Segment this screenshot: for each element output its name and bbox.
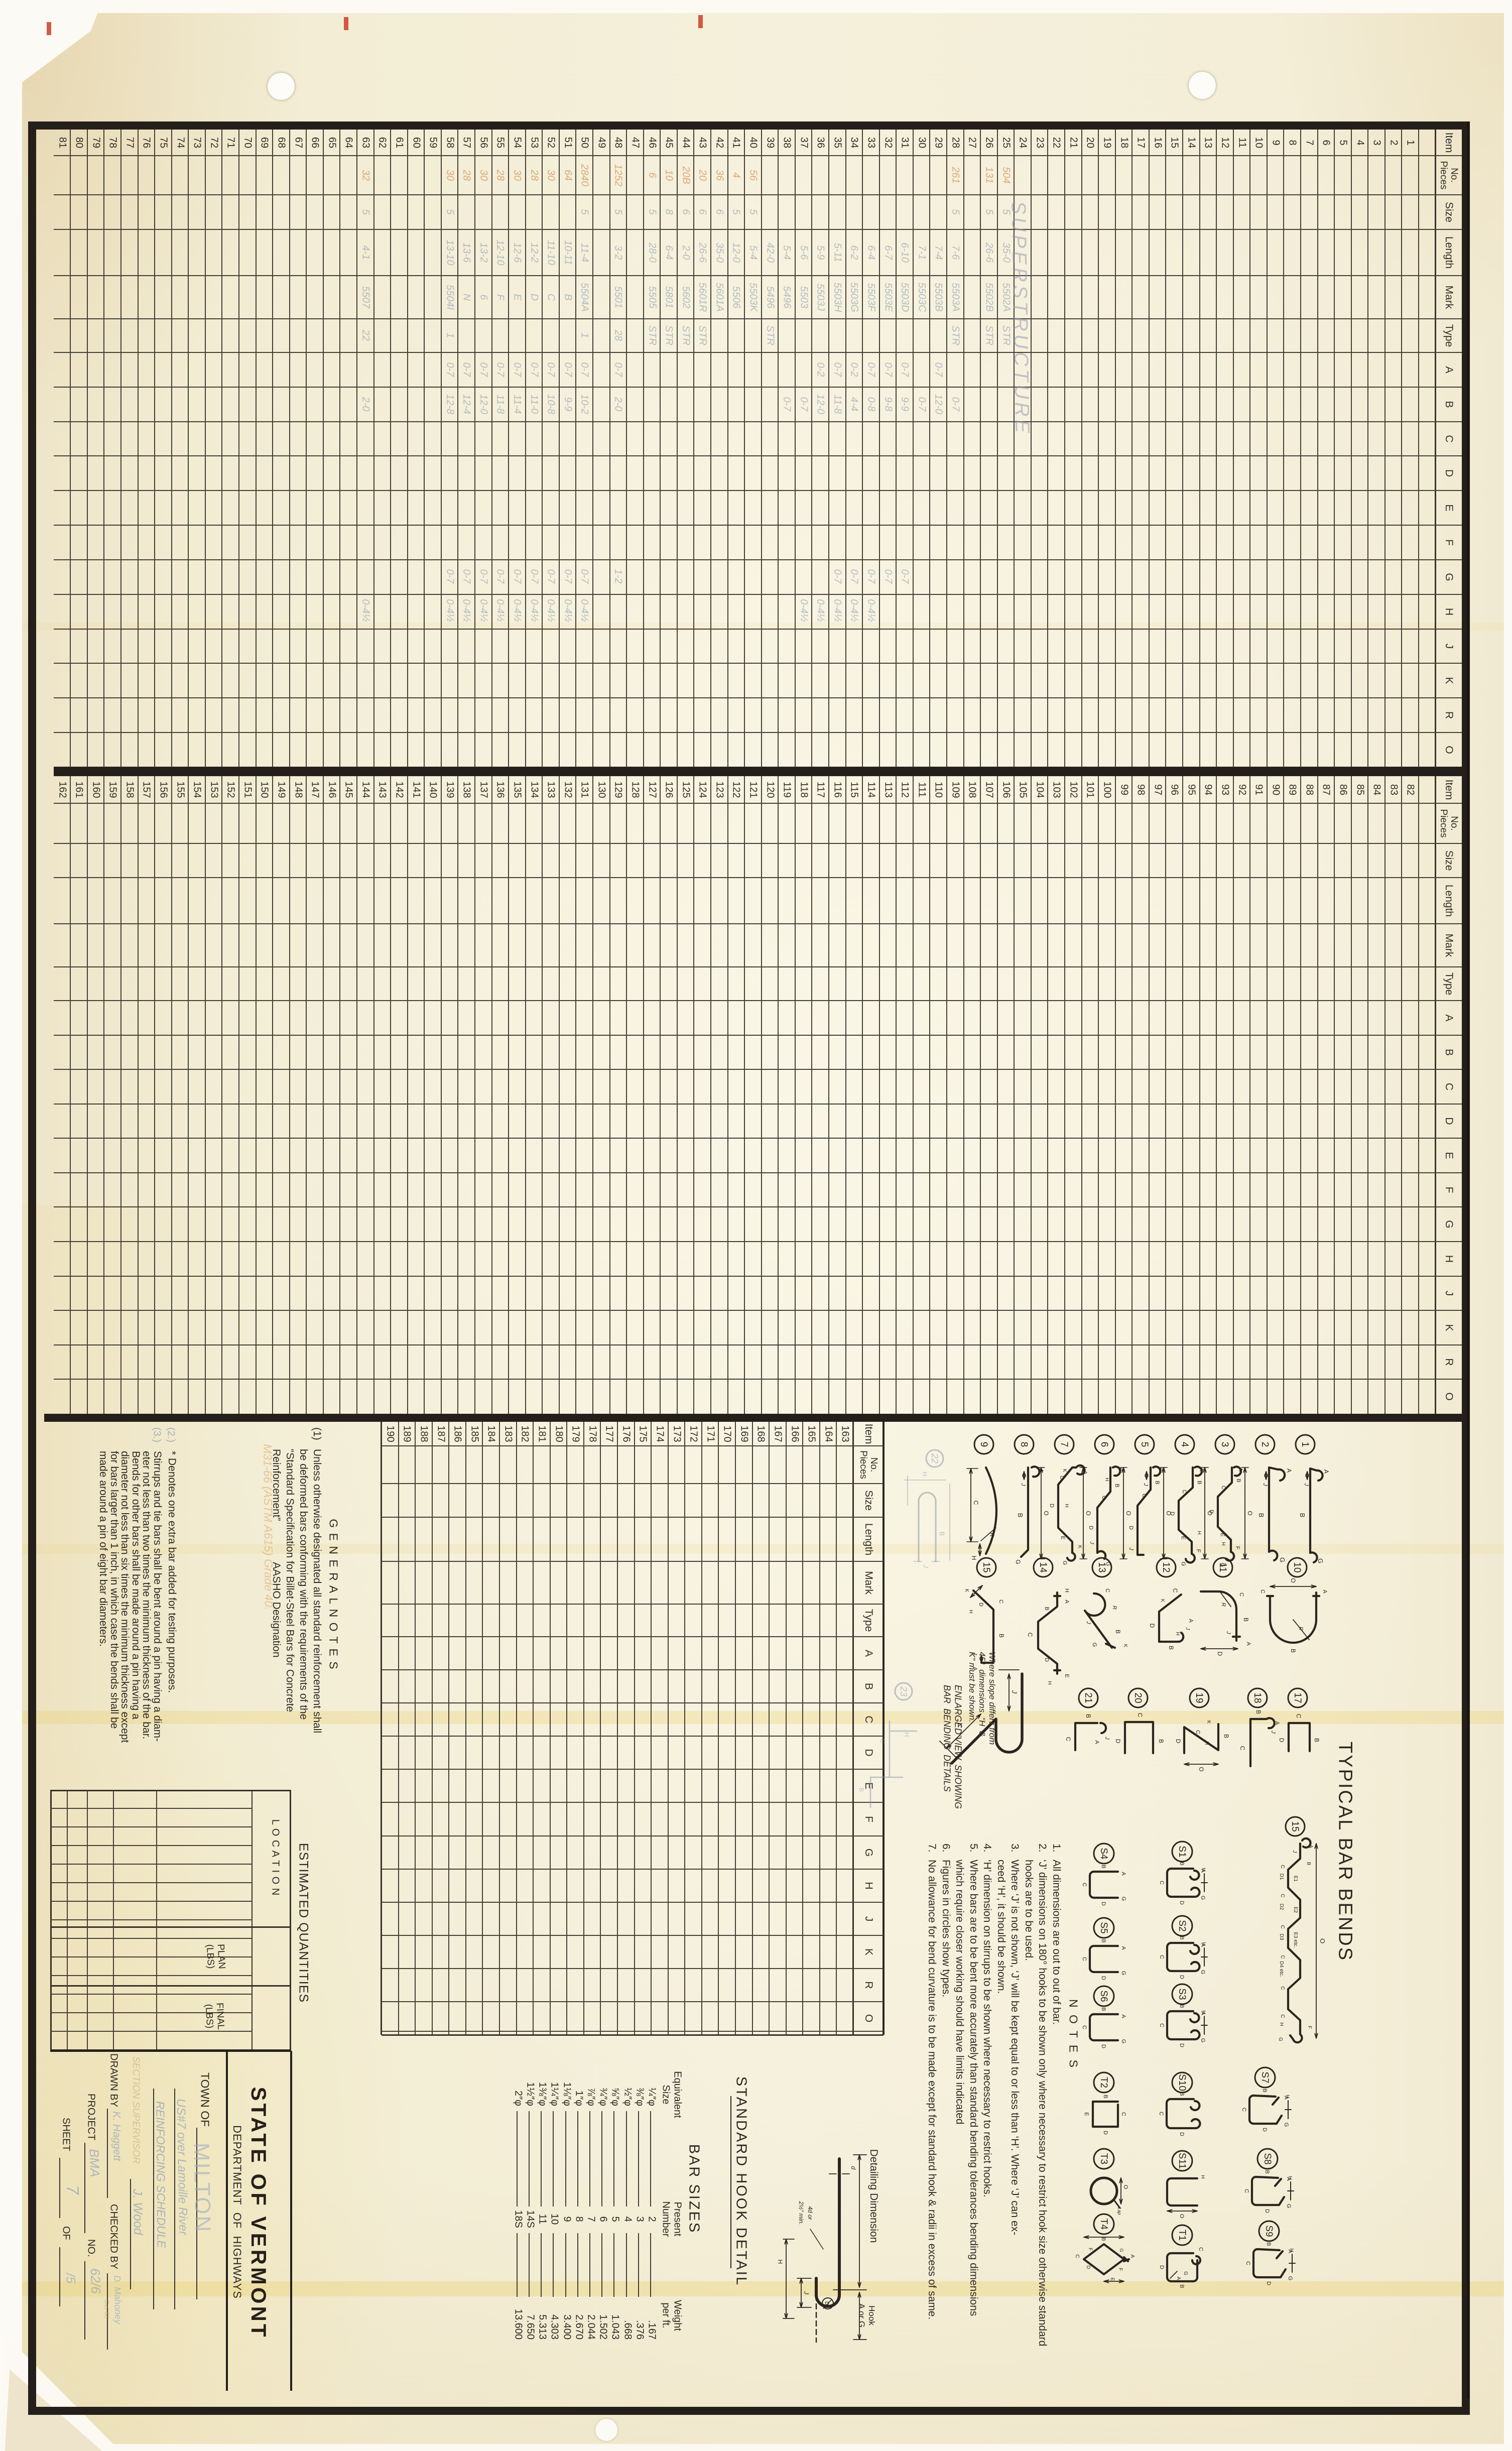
svg-text:A: A — [1274, 1721, 1280, 1725]
svg-text:C: C — [1081, 2025, 1087, 2029]
svg-text:D: D — [1044, 1658, 1050, 1662]
svg-text:J: J — [1011, 1690, 1018, 1694]
svg-text:D: D — [1262, 2128, 1268, 2132]
svg-text:S11: S11 — [1177, 2153, 1187, 2169]
svg-text:H: H — [1287, 2176, 1293, 2179]
svg-text:B: B — [1179, 2092, 1185, 2096]
svg-text:13: 13 — [1096, 1562, 1107, 1572]
svg-text:B: B — [1290, 1649, 1297, 1653]
svg-text:D: D — [1216, 1652, 1223, 1656]
svg-text:5: 5 — [1139, 1442, 1150, 1447]
svg-text:E1: E1 — [1293, 1876, 1298, 1882]
svg-text:14: 14 — [1038, 1562, 1048, 1573]
svg-text:S7: S7 — [1259, 2071, 1270, 2083]
svg-text:J: J — [1128, 1547, 1134, 1550]
svg-text:S5: S5 — [1098, 1922, 1109, 1933]
svg-text:O: O — [1206, 1511, 1213, 1515]
svg-text:D: D — [1149, 1624, 1156, 1628]
svg-text:O: O — [1125, 1511, 1132, 1515]
svg-text:B: B — [1158, 1739, 1165, 1743]
svg-text:B: B — [1235, 1479, 1241, 1482]
svg-text:J: J — [803, 2291, 810, 2295]
svg-text:J: J — [1085, 1621, 1091, 1624]
svg-text:G: G — [1200, 2038, 1206, 2043]
svg-text:D: D — [1100, 2044, 1106, 2048]
svg-text:B: B — [1262, 2089, 1268, 2092]
svg-text:O: O — [1290, 1578, 1297, 1582]
svg-text:H: H — [1201, 2010, 1206, 2014]
svg-text:K: K — [1062, 1469, 1067, 1473]
svg-text:F: F — [1307, 2026, 1312, 2029]
svg-text:R: R — [1220, 1603, 1226, 1607]
svg-text:F: F — [1087, 2248, 1093, 2251]
svg-text:Lap: Lap — [1117, 2207, 1122, 2215]
svg-text:C: C — [1245, 2261, 1251, 2265]
svg-text:F: F — [1195, 1549, 1201, 1553]
svg-text:C: C — [1195, 1730, 1201, 1734]
svg-text:C: C — [1137, 1713, 1144, 1718]
svg-text:D: D — [1175, 1739, 1182, 1744]
svg-text:B: B — [1306, 1862, 1311, 1866]
svg-text:A: A — [1158, 1467, 1164, 1472]
svg-text:B: B — [1266, 2242, 1272, 2246]
svg-text:B: B — [1114, 1630, 1121, 1634]
svg-text:B: B — [1179, 1862, 1185, 1865]
svg-text:B: B — [1313, 1738, 1320, 1742]
svg-text:D: D — [1264, 2209, 1270, 2213]
svg-text:H: H — [921, 1472, 928, 1477]
svg-text:J: J — [1262, 1483, 1268, 1486]
svg-text:H: H — [1204, 1741, 1209, 1745]
svg-text:B: B — [1264, 2170, 1270, 2173]
svg-text:J: J — [922, 1564, 929, 1568]
svg-text:H: H — [1200, 2175, 1205, 2178]
svg-text:C: C — [1159, 2023, 1165, 2027]
svg-text:J: J — [1143, 1483, 1149, 1486]
svg-text:H: H — [1047, 1681, 1052, 1684]
svg-text:O: O — [1122, 2185, 1128, 2189]
svg-text:J: J — [1020, 1483, 1026, 1486]
svg-text:10: 10 — [1292, 1562, 1302, 1572]
svg-text:17: 17 — [1292, 1692, 1303, 1703]
svg-text:D4 etc.: D4 etc. — [1279, 1961, 1284, 1977]
svg-text:C: C — [1141, 1494, 1147, 1498]
svg-text:S1: S1 — [1177, 1846, 1187, 1857]
svg-text:J: J — [1270, 1730, 1276, 1734]
svg-text:T2: T2 — [1098, 2077, 1109, 2088]
svg-text:D2: D2 — [1279, 1904, 1284, 1910]
svg-text:C: C — [1065, 1737, 1072, 1742]
svg-text:H: H — [1201, 1868, 1206, 1871]
svg-text:B: B — [1179, 1936, 1185, 1939]
svg-text:B: B — [1179, 2284, 1185, 2288]
svg-text:B: B — [1242, 1618, 1249, 1622]
svg-text:B: B — [1299, 1513, 1306, 1518]
svg-text:23: 23 — [899, 1686, 909, 1696]
svg-text:E: E — [1064, 1674, 1070, 1677]
svg-text:H: H — [1104, 1478, 1109, 1481]
svg-text:D: D — [1179, 1901, 1185, 1905]
svg-text:A: A — [1120, 2014, 1126, 2018]
svg-text:J: J — [1104, 1736, 1110, 1740]
svg-text:H: H — [1289, 2248, 1294, 2252]
svg-text:C: C — [1243, 2189, 1249, 2193]
svg-text:B: B — [1154, 1481, 1160, 1484]
svg-text:4: 4 — [1179, 1442, 1190, 1447]
svg-text:A: A — [1064, 1600, 1070, 1604]
svg-text:C: C — [879, 1739, 886, 1744]
svg-text:4d or: 4d or — [807, 2206, 814, 2220]
svg-text:A: A — [1118, 1467, 1124, 1472]
svg-text:C: C — [1120, 2112, 1126, 2116]
svg-text:E: E — [1219, 1533, 1225, 1536]
svg-text:O: O — [1246, 1511, 1253, 1515]
svg-text:C: C — [1181, 1490, 1187, 1494]
svg-text:15: 15 — [981, 1562, 991, 1572]
svg-text:9: 9 — [978, 1442, 989, 1447]
svg-text:G: G — [1279, 1557, 1286, 1562]
svg-text:21: 21 — [1083, 1692, 1093, 1703]
svg-text:H: H — [1279, 2022, 1284, 2026]
svg-text:T4: T4 — [1098, 2219, 1109, 2230]
svg-text:K: K — [1160, 1599, 1165, 1603]
svg-text:H: H — [1220, 1542, 1226, 1545]
svg-text:B: B — [1114, 1484, 1120, 1487]
svg-text:B: B — [858, 1788, 865, 1792]
svg-text:G: G — [1120, 2039, 1126, 2044]
svg-text:T3: T3 — [1098, 2153, 1109, 2164]
svg-text:D: D — [1085, 2265, 1091, 2269]
svg-text:3: 3 — [1219, 1442, 1230, 1447]
svg-text:S8: S8 — [1262, 2153, 1273, 2164]
svg-text:S9: S9 — [1264, 2225, 1274, 2237]
svg-text:J: J — [1225, 1631, 1231, 1634]
svg-text:D: D — [1179, 2132, 1185, 2136]
svg-text:A: A — [1038, 1468, 1045, 1473]
svg-text:O: O — [1043, 1511, 1050, 1515]
svg-text:H: H — [1064, 1504, 1069, 1507]
svg-text:B: B — [938, 1532, 946, 1536]
svg-text:C: C — [1158, 2112, 1164, 2116]
svg-text:D: D — [1100, 1976, 1106, 1980]
svg-text:G: G — [1287, 2276, 1293, 2281]
svg-text:A: A — [1129, 2255, 1135, 2258]
svg-text:D: D — [1049, 1504, 1055, 1508]
svg-text:22: 22 — [930, 1453, 940, 1463]
svg-text:D: D — [1179, 2043, 1185, 2047]
svg-text:18: 18 — [1252, 1692, 1263, 1703]
svg-text:D: D — [978, 1603, 984, 1607]
svg-text:A: A — [1245, 1642, 1251, 1646]
svg-text:H: H — [777, 2260, 784, 2264]
svg-text:T1: T1 — [1177, 2230, 1187, 2241]
svg-text:S2: S2 — [1177, 1920, 1187, 1931]
svg-text:C: C — [1238, 1592, 1244, 1597]
svg-text:G: G — [1119, 2248, 1124, 2252]
svg-text:K: K — [1077, 1545, 1082, 1549]
svg-text:B: B — [1044, 1607, 1050, 1610]
svg-text:2½″ min.: 2½″ min. — [798, 2201, 805, 2225]
svg-text:H: H — [1175, 1632, 1180, 1635]
svg-text:G: G — [1091, 1643, 1097, 1647]
svg-text:R: R — [1298, 1627, 1304, 1631]
svg-text:E: E — [1180, 1536, 1186, 1539]
svg-text:O: O — [1319, 1938, 1326, 1943]
svg-text:15: 15 — [1290, 1821, 1300, 1831]
svg-text:A: A — [1082, 1470, 1088, 1475]
svg-text:A: A — [1198, 1467, 1204, 1472]
svg-text:C: C — [1239, 1746, 1246, 1751]
svg-text:K: K — [964, 1589, 969, 1592]
svg-text:C: C — [1101, 1496, 1107, 1500]
svg-text:C: C — [1081, 1957, 1087, 1961]
svg-text:K: K — [1122, 1644, 1128, 1648]
svg-text:K: K — [956, 1723, 964, 1728]
svg-text:F: F — [1234, 1546, 1240, 1550]
svg-text:D: D — [1179, 1975, 1185, 1979]
svg-text:B: B — [1100, 1939, 1106, 1942]
svg-text:G: G — [1317, 1558, 1324, 1563]
svg-text:2: 2 — [1259, 1442, 1270, 1447]
svg-text:D: D — [1100, 1902, 1106, 1906]
svg-text:C: C — [1198, 2247, 1204, 2251]
svg-text:C: C — [1280, 1955, 1285, 1958]
svg-text:C: C — [1241, 2108, 1247, 2112]
svg-text:C: C — [1172, 1588, 1179, 1593]
svg-text:G: G — [1120, 1897, 1126, 1901]
svg-text:H: H — [903, 1733, 910, 1737]
svg-text:D: D — [1102, 2131, 1108, 2135]
svg-text:G: G — [1180, 1562, 1186, 1566]
svg-text:7: 7 — [1059, 1442, 1069, 1447]
svg-text:20: 20 — [1132, 1692, 1143, 1703]
svg-text:H: H — [1064, 1588, 1070, 1592]
svg-text:R: R — [1111, 1606, 1117, 1610]
svg-text:G: G — [1200, 1896, 1206, 1900]
svg-text:H: H — [1201, 1942, 1206, 1945]
svg-text:H: H — [970, 1556, 977, 1560]
svg-text:B: B — [998, 1634, 1005, 1638]
svg-text:J: J — [1089, 1541, 1094, 1545]
svg-text:B: B — [1017, 1513, 1024, 1518]
svg-text:C: C — [1081, 1883, 1087, 1887]
svg-text:C: C — [1220, 1486, 1226, 1490]
svg-text:A: A — [1120, 1872, 1126, 1876]
svg-text:G: G — [1278, 2037, 1283, 2041]
svg-text:D1: D1 — [1279, 1874, 1284, 1880]
svg-text:B: B — [1100, 2007, 1106, 2011]
svg-text:C: C — [1295, 1714, 1302, 1719]
svg-text:A: A — [1188, 1619, 1194, 1623]
svg-text:R: R — [988, 1533, 995, 1537]
svg-text:A: A — [1286, 1468, 1293, 1473]
svg-text:C: C — [1259, 1589, 1266, 1594]
svg-text:19: 19 — [1194, 1692, 1204, 1703]
svg-text:G: G — [1200, 1970, 1206, 1975]
svg-text:B: B — [1168, 1646, 1175, 1650]
svg-text:B: B — [1100, 2237, 1106, 2241]
svg-text:H: H — [1285, 2095, 1290, 2098]
svg-text:D: D — [1128, 1526, 1134, 1530]
svg-text:C: C — [1027, 1633, 1034, 1637]
svg-text:6: 6 — [1099, 1442, 1109, 1447]
svg-text:A: A — [1094, 1740, 1100, 1744]
svg-text:S4: S4 — [1098, 1848, 1109, 1860]
svg-text:A: A — [1176, 2277, 1181, 2280]
svg-text:S3: S3 — [1177, 1988, 1187, 2000]
svg-text:E: E — [1109, 2278, 1115, 2281]
svg-text:G: G — [1183, 2271, 1188, 2275]
svg-text:C: C — [1280, 1986, 1285, 1990]
svg-text:G: G — [1015, 1559, 1022, 1564]
svg-text:C: C — [1159, 1955, 1165, 1959]
svg-text:J: J — [972, 1652, 977, 1656]
svg-text:J: J — [1185, 1627, 1190, 1631]
svg-text:A: A — [1308, 1845, 1313, 1849]
svg-text:D: D — [1088, 1526, 1094, 1530]
svg-text:C: C — [1280, 1925, 1285, 1928]
svg-text:K: K — [1206, 1721, 1211, 1724]
svg-text:8: 8 — [1019, 1442, 1029, 1447]
svg-text:J: J — [1292, 1850, 1297, 1854]
svg-text:B: B — [1196, 1481, 1202, 1484]
svg-text:1: 1 — [1300, 1442, 1310, 1447]
svg-text:C: C — [1280, 2014, 1285, 2018]
svg-text:E: E — [1060, 1536, 1066, 1539]
svg-text:D: D — [1159, 2265, 1165, 2269]
svg-text:B: B — [1102, 2095, 1108, 2098]
svg-text:C: C — [1159, 1881, 1165, 1885]
svg-text:B: B — [1223, 1734, 1230, 1738]
svg-text:A: A — [1322, 1589, 1328, 1594]
svg-text:C: C — [1280, 1865, 1285, 1868]
svg-text:G: G — [1283, 2123, 1289, 2127]
svg-text:E2: E2 — [1293, 1907, 1298, 1913]
svg-text:B: B — [1255, 1710, 1262, 1714]
svg-text:C: C — [1074, 2254, 1080, 2258]
svg-text:11: 11 — [1217, 1562, 1228, 1572]
svg-text:G: G — [1120, 1971, 1126, 1976]
svg-text:J: J — [1303, 1483, 1309, 1486]
svg-text:E3 etc.: E3 etc. — [1293, 1932, 1298, 1947]
svg-text:D3: D3 — [1279, 1934, 1284, 1940]
svg-text:H: H — [1196, 1531, 1202, 1534]
svg-text:C: C — [972, 1501, 979, 1505]
svg-text:C: C — [998, 1600, 1004, 1604]
svg-text:H: H — [968, 1610, 973, 1613]
svg-text:B: B — [1179, 2004, 1185, 2008]
svg-text:A: A — [972, 1667, 978, 1671]
svg-text:12: 12 — [1161, 1562, 1171, 1572]
svg-text:G: G — [1286, 2204, 1292, 2209]
svg-text:A: A — [1237, 1467, 1243, 1472]
svg-text:F: F — [1117, 2268, 1123, 2271]
svg-text:B: B — [1257, 1513, 1265, 1518]
svg-text:D: D — [1278, 1738, 1285, 1743]
svg-text:G: G — [1062, 1561, 1068, 1565]
svg-text:O: O — [1198, 1767, 1205, 1771]
svg-text:d: d — [850, 2166, 857, 2170]
svg-text:E: E — [1083, 2112, 1089, 2116]
svg-text:C: C — [1059, 1476, 1065, 1480]
svg-text:O: O — [1085, 1511, 1092, 1515]
svg-text:S10: S10 — [1177, 2074, 1187, 2091]
svg-text:D: D — [1114, 1739, 1121, 1744]
svg-text:C: C — [1280, 1894, 1285, 1897]
svg-text:C: C — [1104, 1588, 1110, 1592]
svg-text:S6: S6 — [1098, 1990, 1109, 2002]
svg-text:A: A — [1120, 1946, 1126, 1950]
svg-text:O: O — [1179, 2214, 1185, 2219]
svg-text:O: O — [1165, 1511, 1172, 1515]
svg-text:B: B — [1100, 1865, 1106, 1868]
svg-text:D: D — [1266, 2281, 1272, 2285]
svg-text:B: B — [1085, 1714, 1092, 1718]
svg-text:A: A — [1323, 1469, 1330, 1474]
